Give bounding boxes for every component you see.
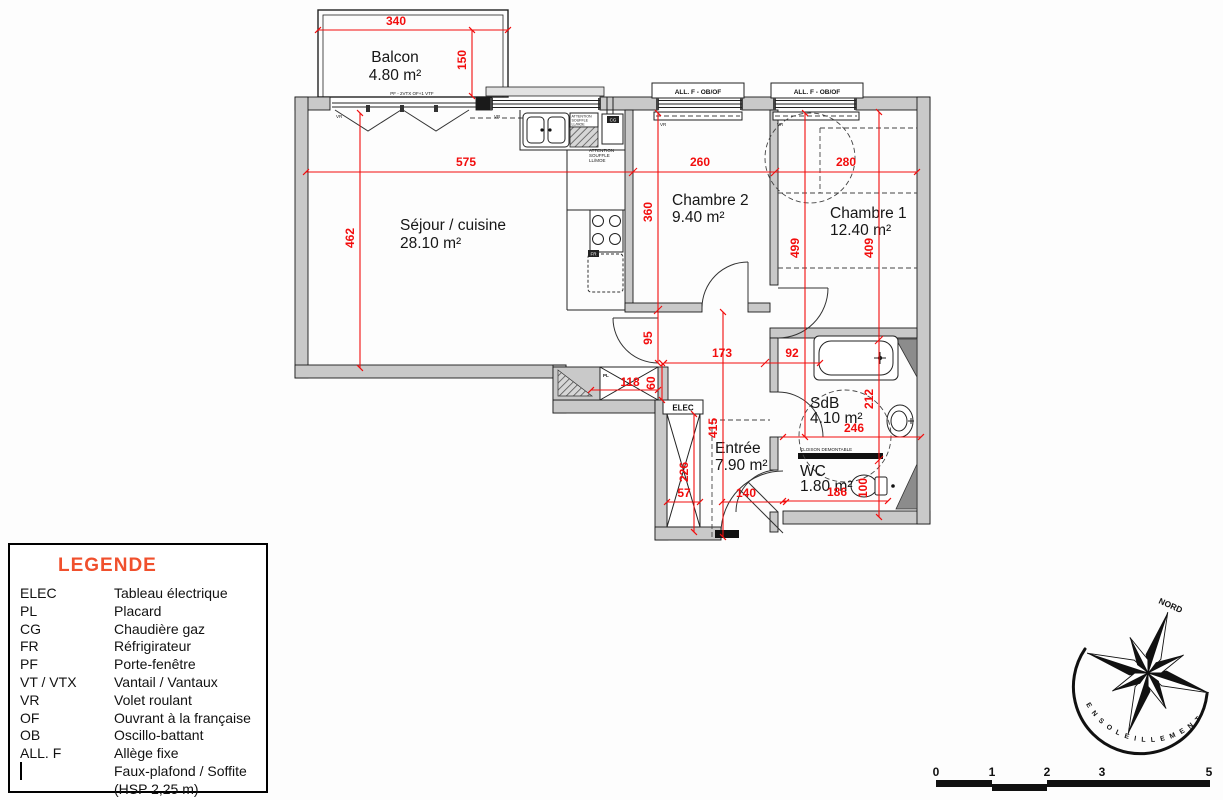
legend-box: LEGENDE ELECTableau électrique PLPlacard… [8, 543, 268, 793]
scale-0: 0 [933, 765, 940, 779]
dim-elec-h: 226 [677, 462, 691, 482]
north-label: NORD [1157, 596, 1184, 615]
room-name-chambre2: Chambre 2 [672, 192, 749, 209]
legend-row-ob: OBOscillo-battant [20, 727, 266, 745]
legend-row-elec: ELECTableau électrique [20, 585, 266, 603]
svg-text:LL/MOE: LL/MOE [589, 158, 606, 163]
legend-row-pf: PFPorte-fenêtre [20, 656, 266, 674]
dim-placard-d: 60 [644, 376, 658, 390]
room-name-chambre1: Chambre 1 [830, 205, 907, 222]
pl-tag: PL [603, 373, 609, 378]
dim-entree-h: 415 [706, 418, 720, 438]
legend-row-allf: ALL. FAllège fixe [20, 745, 266, 763]
duct-sdb [896, 339, 917, 377]
cg-tag: CG [610, 118, 617, 123]
window-label-ch2: ALL. F - OB/OF [675, 89, 722, 96]
svg-text:CLOISON DEMONTABLE: CLOISON DEMONTABLE [800, 447, 852, 452]
room-name-balcon: Balcon [371, 49, 418, 66]
dim-placard-w: 118 [620, 375, 640, 389]
dim-sejour-h: 462 [343, 228, 357, 248]
pf-note: PF - 2VTX OF+1 VTF [390, 91, 434, 96]
dim-opening-95: 95 [641, 331, 655, 345]
stove [590, 210, 623, 252]
elec-tag: ELEC [672, 404, 694, 413]
walls [295, 97, 930, 540]
room-area-chambre2: 9.40 m² [672, 209, 725, 226]
dim-ch1-h-right: 409 [862, 238, 876, 258]
legend-row-fauxplafond: Faux-plafond / Soffite (HSP 2,25 m) [20, 763, 266, 799]
dim-balcony-w: 340 [386, 14, 406, 28]
legend-row-cg: CGChaudière gaz [20, 621, 266, 639]
svg-text:LL/MOE: LL/MOE [572, 123, 586, 127]
dim-elec-w: 57 [677, 486, 691, 500]
washer-note: ATTENTION SOUFFLE LL/MOE [570, 113, 598, 147]
dim-entree-w: 140 [736, 486, 756, 500]
dim-ch2-w: 260 [690, 155, 710, 169]
floor-plan-page: ALL. F - OB/OF ALL. F - OB/OF VR VR VR V… [0, 0, 1223, 800]
cloison-demontable: CLOISON DEMONTABLE [798, 447, 883, 459]
fridge: FR [588, 250, 623, 292]
sun-arc-text: ENSOLEILLEMENT [1084, 702, 1206, 744]
scale-2: 2 [1044, 765, 1051, 779]
legend-title: LEGENDE [58, 555, 266, 577]
bathtub [814, 336, 898, 380]
entrance-threshold [715, 530, 739, 538]
scale-3: 3 [1099, 765, 1106, 779]
room-area-chambre1: 12.40 m² [830, 222, 891, 239]
room-name-sejour: Séjour / cuisine [400, 217, 506, 234]
window-label-ch1: ALL. F - OB/OF [794, 89, 841, 96]
scale-bar: 0 1 2 3 5 [933, 765, 1213, 791]
scale-5: 5 [1206, 765, 1213, 779]
dim-balcony-d: 150 [455, 50, 469, 70]
dim-hall-b: 92 [785, 346, 799, 360]
dim-hall-a: 173 [712, 346, 732, 360]
vr-tag-1: VR [336, 114, 343, 119]
sun-arc-text-wrap: ENSOLEILLEMENT [1084, 702, 1206, 744]
dim-sejour-w: 575 [456, 155, 476, 169]
room-area-sejour: 28.10 m² [400, 235, 461, 252]
vr-tag-2: VR [494, 114, 501, 119]
scale-1: 1 [989, 765, 996, 779]
hatch-swatch-icon [20, 762, 22, 780]
vr-tag-3: VR [660, 122, 667, 127]
dim-wc-w: 186 [827, 485, 847, 499]
kitchen: ATTENTION SOUFFLE LL/MOE CG FR [520, 97, 625, 310]
room-area-balcon: 4.80 m² [369, 67, 422, 84]
legend-row-vr: VRVolet roulant [20, 692, 266, 710]
dim-ch1-w: 280 [836, 155, 856, 169]
fr-tag: FR [591, 252, 598, 257]
door-chambre2 [702, 262, 748, 308]
attention-note: ATTENTION SOUFFLE LL/MOE [589, 148, 614, 163]
dim-ch2-h: 360 [641, 202, 655, 222]
duct-wc [896, 464, 917, 509]
legend-row-vt: VT / VTXVantail / Vantaux [20, 674, 266, 692]
room-name-entree: Entrée [715, 440, 761, 457]
kitchen-sink [523, 113, 569, 147]
dim-sdb-w: 246 [844, 421, 864, 435]
legend-row-of: OFOuvrant à la française [20, 710, 266, 728]
dim-wc-h: 100 [856, 478, 870, 498]
compass-rose: ENSOLEILLEMENT NORD [1067, 592, 1223, 753]
dim-sdb-h: 212 [862, 389, 876, 409]
legend-row-fr: FRRéfrigirateur [20, 638, 266, 656]
dim-ch1-h-left: 499 [788, 238, 802, 258]
legend-row-pl: PLPlacard [20, 603, 266, 621]
